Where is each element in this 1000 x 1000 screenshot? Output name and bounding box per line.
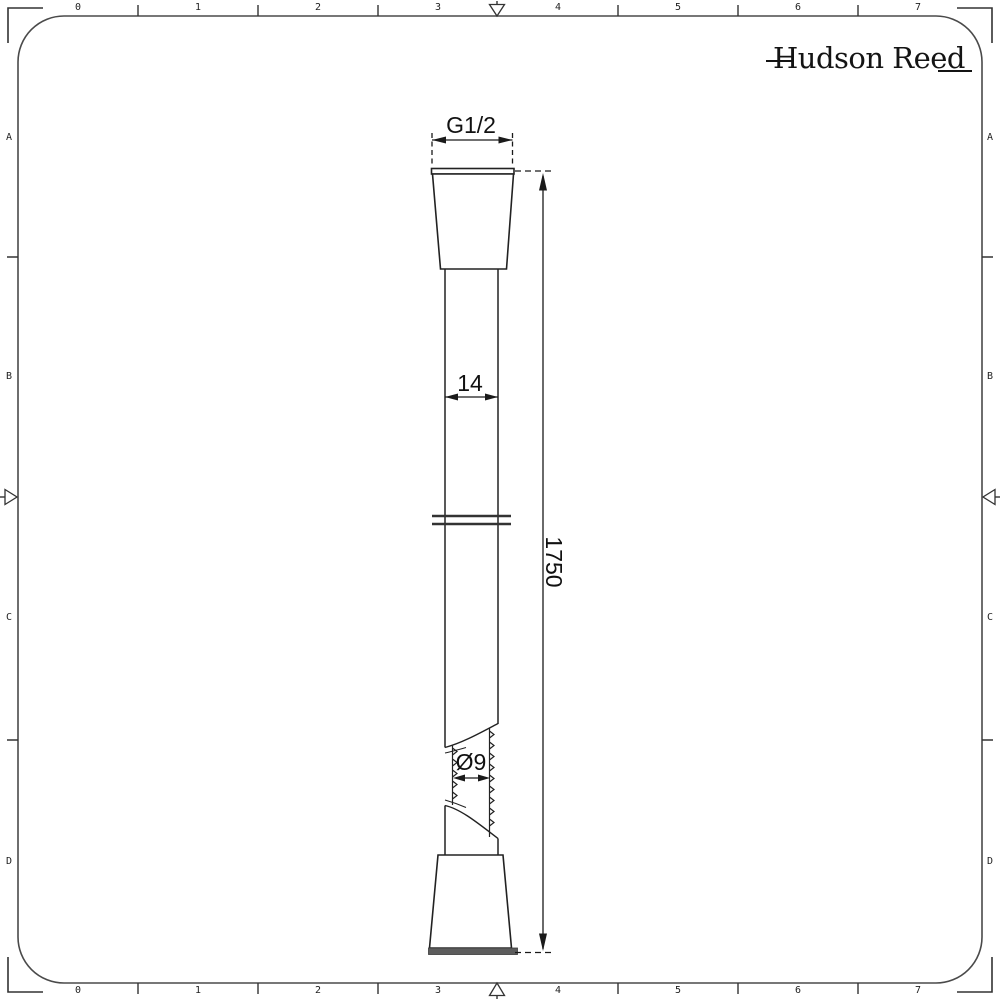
outer-diameter-label: 14 xyxy=(457,370,483,396)
center-marker-top-icon xyxy=(490,1,505,16)
thread-size-label: G1/2 xyxy=(446,112,496,138)
shower-hose-technical-drawing: G1/2 14 1750 Ø9 xyxy=(0,0,1000,1000)
hose-coupling xyxy=(432,516,511,524)
bottom-connector-base-band xyxy=(429,948,518,955)
top-connector-cap xyxy=(432,169,515,175)
center-marker-right-icon xyxy=(983,490,1000,505)
inner-diameter-label: Ø9 xyxy=(456,749,487,775)
dimension-thread-size xyxy=(432,133,513,167)
inner-hose-serration-right xyxy=(490,728,495,837)
bottom-connector-body xyxy=(430,855,512,948)
corner-crop-marks xyxy=(8,8,992,992)
technical-drawing-page: { "brand": { "name": "Hudson Reed" }, "d… xyxy=(0,0,1000,1000)
top-connector-body xyxy=(433,174,514,269)
dimension-inner-diameter xyxy=(453,775,490,782)
center-marker-bottom-icon xyxy=(490,983,505,999)
drawing-frame xyxy=(18,16,982,983)
center-marker-left-icon xyxy=(0,490,17,505)
length-label: 1750 xyxy=(541,536,567,587)
